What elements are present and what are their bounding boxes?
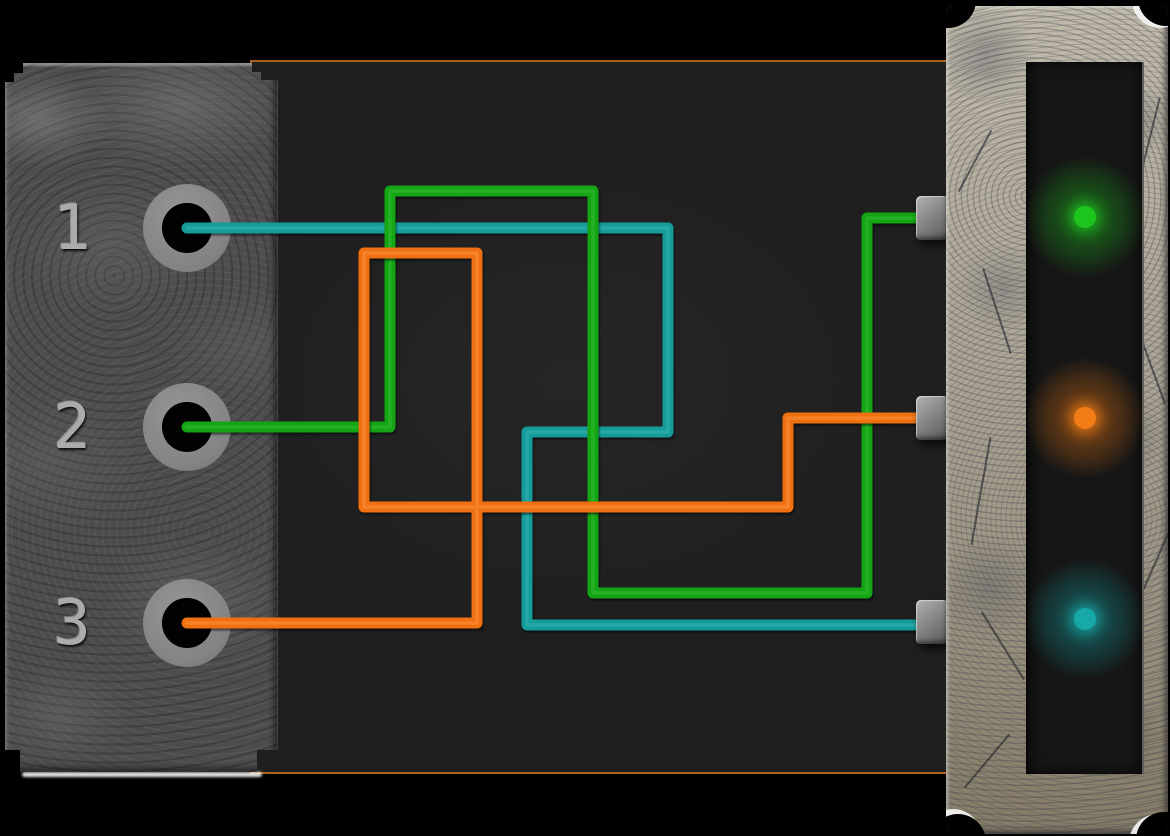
indicator-light-teal (1074, 608, 1096, 630)
crack-decoration (982, 268, 1012, 354)
socket-1[interactable] (916, 196, 948, 240)
crack-decoration (981, 612, 1025, 681)
indicator-light-orange (1074, 407, 1096, 429)
wire-green-port-2-to-socket-1-highlight (187, 191, 940, 593)
socket-2[interactable] (916, 396, 948, 440)
corner-notch (1138, 6, 1168, 26)
crack-decoration (970, 437, 991, 546)
wire-orange-port-3-to-socket-2[interactable] (187, 253, 940, 623)
socket-3[interactable] (916, 600, 948, 644)
corner-notch (946, 814, 986, 834)
corner-notch (946, 6, 976, 28)
puzzle-stage: 123 (0, 0, 1170, 836)
corner-notch (1136, 812, 1168, 834)
indicator-light-green (1074, 206, 1096, 228)
indicator-frame (946, 6, 1168, 834)
wire-orange-port-3-to-socket-2-highlight (187, 253, 940, 623)
wire-green-port-2-to-socket-1[interactable] (187, 191, 940, 593)
crack-decoration (958, 130, 993, 193)
crack-decoration (964, 734, 1011, 789)
indicator-window (1026, 62, 1144, 774)
